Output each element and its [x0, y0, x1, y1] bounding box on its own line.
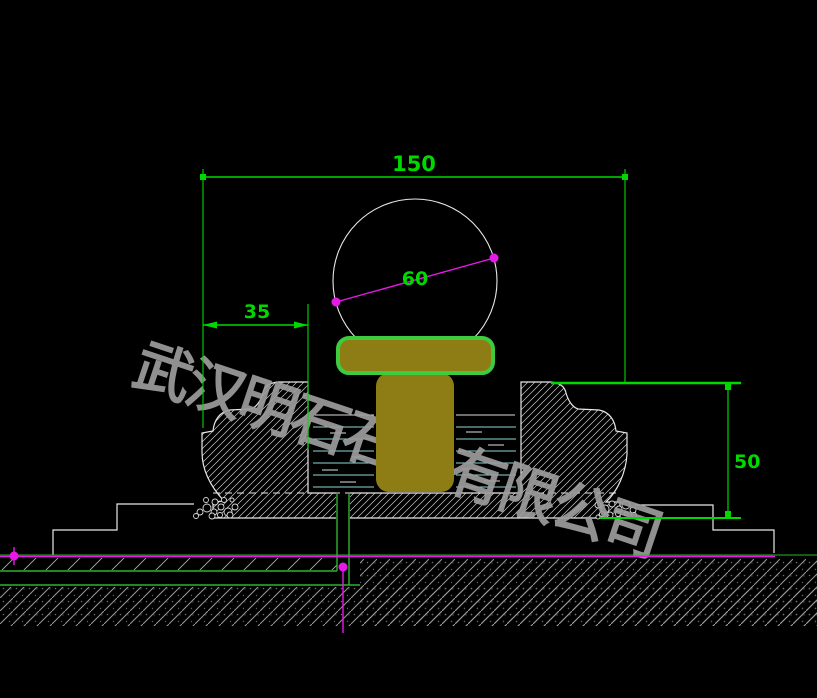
cad-drawing-viewport: 武汉明石石业有限公司 15	[0, 0, 817, 698]
pedestal-column	[376, 373, 454, 492]
concrete-base-right	[360, 559, 817, 626]
ball-seat-cap	[338, 338, 493, 373]
left-plinth-steps	[53, 504, 194, 555]
fountain-section-drawing: 武汉明石石业有限公司 15	[0, 0, 817, 698]
dim-text-35: 35	[244, 301, 270, 323]
pipe-slab-cutout	[336, 492, 350, 519]
dim-text-50: 50	[734, 451, 760, 473]
dim-text-150: 150	[392, 152, 436, 176]
mortar-bed-strip	[0, 558, 337, 570]
dim-text-60: 60	[402, 268, 428, 290]
dimension-ball-diameter: 60	[332, 254, 499, 307]
